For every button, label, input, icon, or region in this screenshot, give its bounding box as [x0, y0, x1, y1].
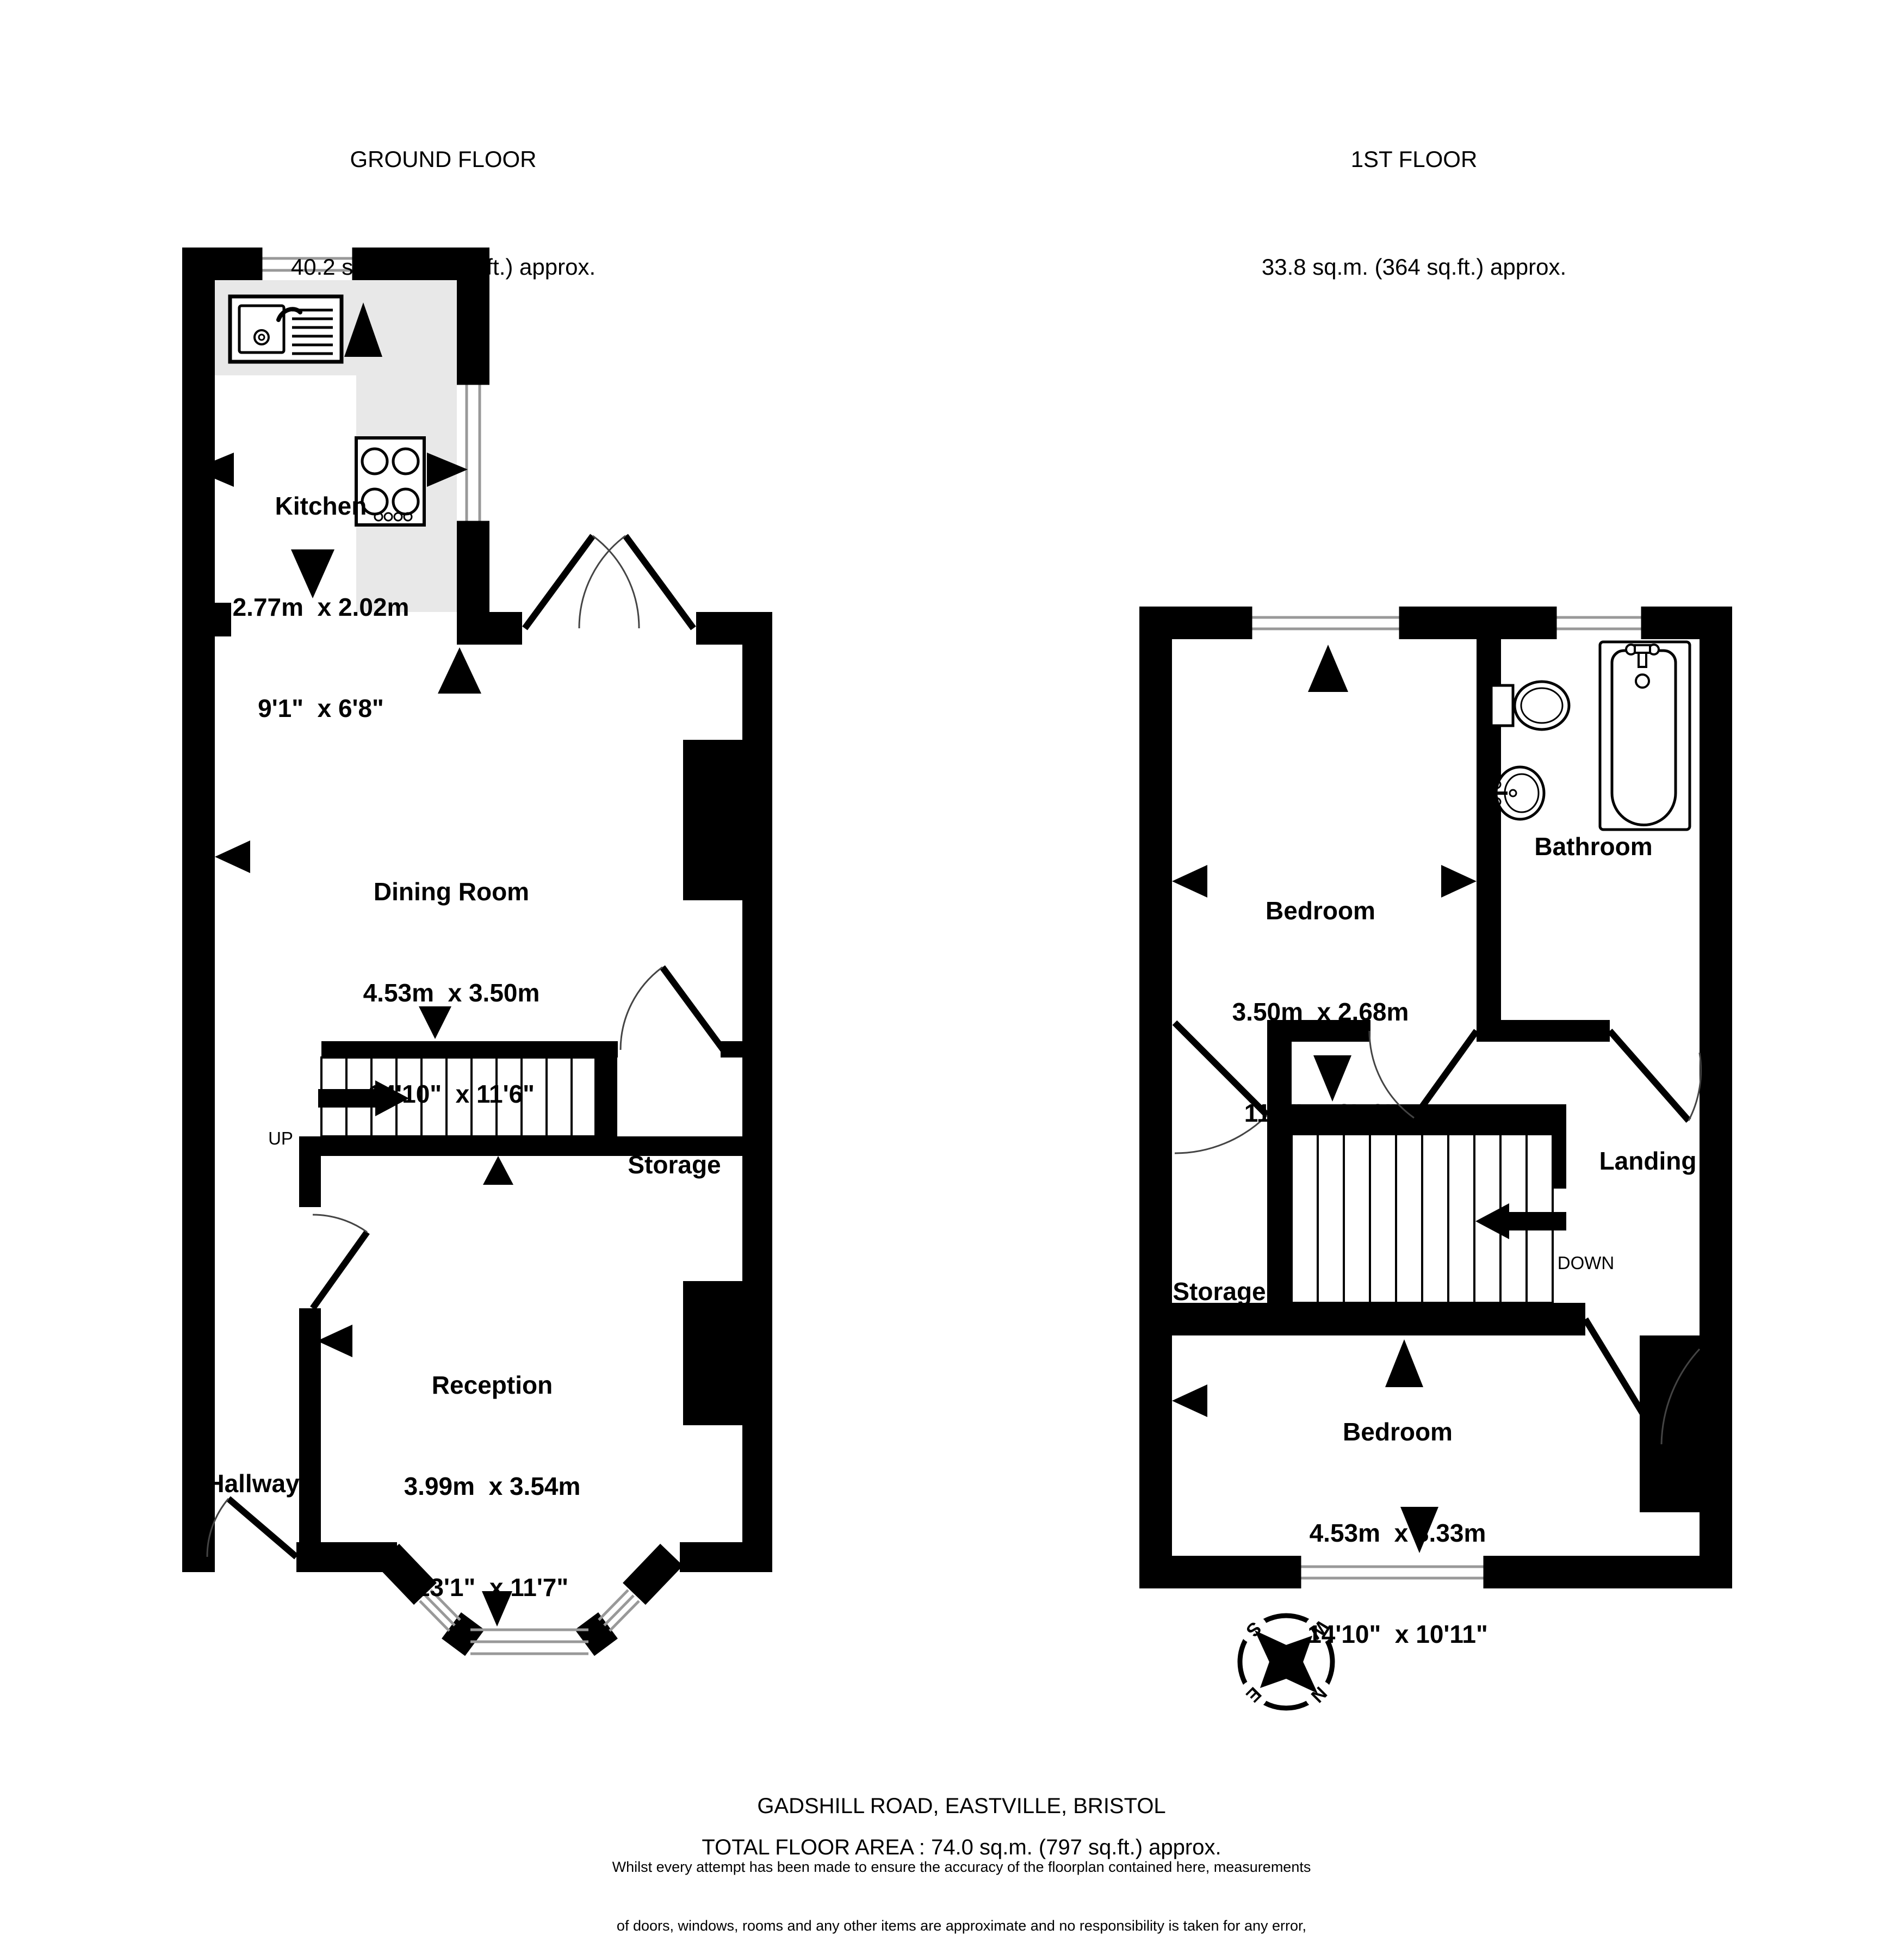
- compass-south-label: S: [1242, 1618, 1266, 1641]
- reception-imperial: 13'1" x 11'7": [404, 1570, 581, 1604]
- bedroom2-label: Bedroom 4.53m x 3.33m 14'10" x 10'11": [1307, 1347, 1488, 1718]
- storage-gf-name: Storage: [628, 1148, 721, 1182]
- landing-name: Landing: [1599, 1144, 1697, 1178]
- kitchen-metric: 2.77m x 2.02m: [233, 590, 410, 624]
- ground-floor-header: GROUND FLOOR 40.2 sq.m. (433 sq.ft.) app…: [291, 70, 596, 357]
- bedroom2-name: Bedroom: [1307, 1415, 1488, 1449]
- dining-room-metric: 4.53m x 3.50m: [363, 976, 540, 1010]
- storage-gf-label: Storage: [628, 1080, 721, 1249]
- down-arrow-icon: [1475, 1203, 1566, 1239]
- ground-floor-title: GROUND FLOOR: [291, 141, 596, 177]
- floorplan-drawing: N S W E: [0, 0, 1904, 1948]
- kitchen-dimension-arrows: [0, 0, 1904, 1948]
- kitchen-name: Kitchen: [233, 489, 410, 523]
- first-floor-header: 1ST FLOOR 33.8 sq.m. (364 sq.ft.) approx…: [1262, 70, 1566, 357]
- compass-east-label: E: [1242, 1683, 1266, 1706]
- hallway-label: Hallway: [206, 1399, 299, 1568]
- disclaimer-line: Whilst every attempt has been made to en…: [608, 1857, 1314, 1877]
- toilet-icon: [1491, 682, 1569, 729]
- bedroom2-metric: 4.53m x 3.33m: [1307, 1516, 1488, 1550]
- kitchen-label: Kitchen 2.77m x 2.02m 9'1" x 6'8": [233, 422, 410, 793]
- reception-metric: 3.99m x 3.54m: [404, 1469, 581, 1503]
- reception-label: Reception 3.99m x 3.54m 13'1" x 11'7": [404, 1301, 581, 1672]
- dining-room-name: Dining Room: [363, 875, 540, 908]
- up-text: UP: [268, 1128, 293, 1149]
- first-floor-area: 33.8 sq.m. (364 sq.ft.) approx.: [1262, 249, 1566, 285]
- reception-name: Reception: [404, 1368, 581, 1402]
- dining-room-imperial: 14'10" x 11'6": [363, 1077, 540, 1111]
- disclaimer: Whilst every attempt has been made to en…: [608, 1818, 1314, 1948]
- bathroom-label: Bathroom: [1534, 762, 1652, 931]
- dining-room-label: Dining Room 4.53m x 3.50m 14'10" x 11'6": [363, 807, 540, 1178]
- bathroom-name: Bathroom: [1534, 830, 1652, 863]
- bedroom1-label: Bedroom 3.50m x 2.68m 11'6" x 8'10": [1232, 826, 1409, 1197]
- first-floor-title: 1ST FLOOR: [1262, 141, 1566, 177]
- stairs-up-label: UP: [268, 1087, 293, 1190]
- stairs-down-label: DOWN: [1558, 1211, 1614, 1315]
- disclaimer-line: of doors, windows, rooms and any other i…: [608, 1916, 1314, 1935]
- bedroom2-imperial: 14'10" x 10'11": [1307, 1617, 1488, 1651]
- bedroom1-metric: 3.50m x 2.68m: [1232, 995, 1409, 1029]
- kitchen-imperial: 9'1" x 6'8": [233, 691, 410, 725]
- storage-ff-label: Storage: [1173, 1207, 1266, 1376]
- down-text: DOWN: [1558, 1253, 1614, 1273]
- bedroom1-imperial: 11'6" x 8'10": [1232, 1096, 1409, 1130]
- floorplan-page: N S W E GROUND FLOOR 40.2 sq.m. (433 sq.…: [0, 0, 1904, 1948]
- hallway-name: Hallway: [206, 1467, 299, 1500]
- ground-floor-area: 40.2 sq.m. (433 sq.ft.) approx.: [291, 249, 596, 285]
- bedroom1-name: Bedroom: [1232, 894, 1409, 927]
- storage-ff-name: Storage: [1173, 1275, 1266, 1308]
